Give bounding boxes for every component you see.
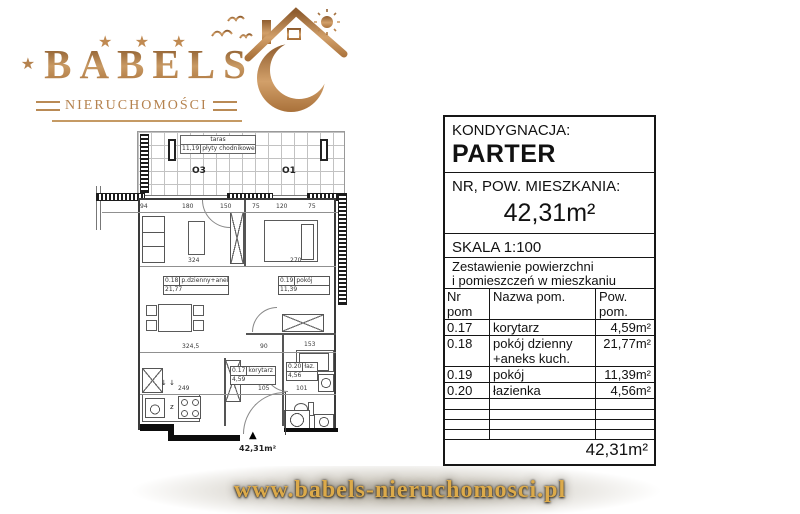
interior-wall <box>244 200 246 267</box>
room-name: p.dzienny+aneks <box>180 277 228 285</box>
house-crescent-icon <box>208 6 353 124</box>
dimension-line <box>140 352 336 353</box>
room-label-bathroom: 0.20 łaz. 4,56 <box>286 362 318 381</box>
room-name: pokój <box>295 277 313 285</box>
door-leaf <box>285 392 286 435</box>
dim-label: 249 <box>178 386 189 392</box>
dimension-line <box>140 266 336 267</box>
fridge <box>142 368 163 393</box>
terrace-area: 11,19 <box>181 145 201 153</box>
sofa <box>142 216 165 263</box>
cell-nr: 0.20 <box>445 383 490 398</box>
cell-area: 4,59m² <box>596 320 654 335</box>
wall-hatch-right <box>338 193 347 305</box>
birds-icon <box>212 17 252 38</box>
dimension-line <box>140 394 336 395</box>
floor-label: KONDYGNACJA: <box>452 122 647 139</box>
dim-label: 94 <box>140 204 148 210</box>
window-label-o3: O3 <box>192 168 206 175</box>
washing-machine <box>318 374 334 392</box>
floor-section: KONDYGNACJA: PARTER <box>445 117 654 173</box>
room-label-bedroom: 0.19 pokój 11,39 <box>278 276 330 295</box>
cell-name: korytarz <box>490 320 596 335</box>
room-nr: 0.19 <box>279 277 295 285</box>
table-row: 0.19 pokój 11,39m² <box>445 367 654 383</box>
apartment-area-value: 42,31m² <box>452 199 647 228</box>
cell-name: pokój dzienny +aneks kuch. <box>490 336 596 366</box>
scale-label: SKALA 1:100 <box>445 234 654 258</box>
terrace-side-wall <box>140 134 149 193</box>
table-row: 0.20 łazienka 4,56m² <box>445 383 654 399</box>
dim-label: 105 <box>258 386 269 392</box>
dim-label: 75 <box>308 204 316 210</box>
summary-title-line1: Zestawienie powierzchni <box>452 260 647 274</box>
room-nr: 0.18 <box>164 277 180 285</box>
cell-nr: 0.19 <box>445 367 490 382</box>
cell-name: łazienka <box>490 383 596 398</box>
cell-area: 21,77m² <box>596 336 654 366</box>
star-icon: ★ <box>21 54 35 74</box>
cell-nr: 0.18 <box>445 336 490 366</box>
kitchen-sink <box>145 398 165 418</box>
cell-area: 11,39m² <box>596 367 654 382</box>
room-area: 4,59 <box>231 376 275 384</box>
terrace-post <box>168 139 176 161</box>
room-area: 11,39 <box>279 286 329 294</box>
table-row: 0.17 korytarz 4,59m² <box>445 320 654 336</box>
coffee-table <box>188 221 205 255</box>
site-footer: www.babels-nieruchomosci.pl <box>0 466 800 514</box>
kitchen-mark: z <box>170 404 174 411</box>
entrance-wall <box>173 435 240 441</box>
dim-label: 75 <box>252 204 260 210</box>
room-nr: 0.17 <box>231 367 247 375</box>
dim-label: 270 <box>290 258 301 264</box>
room-name: łaz. <box>303 363 315 371</box>
bath-bottom-wall <box>282 428 338 432</box>
room-area: 4,56 <box>287 372 317 380</box>
room-area: 21,77 <box>164 286 228 294</box>
room-name: korytarz <box>247 367 274 375</box>
window-label-o1: O1 <box>282 168 296 175</box>
cell-name: pokój <box>490 367 596 382</box>
chair <box>146 305 157 316</box>
flyer-page: ★ ★ ★ ★ BABELS ★ NIERUCHOMOŚCI <box>0 0 800 514</box>
dim-label: 90 <box>260 344 268 350</box>
interior-wall <box>246 333 336 335</box>
brand-subtitle: NIERUCHOMOŚCI <box>65 98 208 114</box>
table-row: 0.18 pokój dzienny +aneks kuch. 21,77m² <box>445 336 654 367</box>
info-panel: KONDYGNACJA: PARTER NR, POW. MIESZKANIA:… <box>443 115 656 466</box>
chair <box>146 320 157 331</box>
dim-label: 150 <box>220 204 231 210</box>
dim-label: 324 <box>188 258 199 264</box>
cell-nr: 0.17 <box>445 320 490 335</box>
dim-label: 153 <box>304 342 315 348</box>
table-row-empty <box>445 410 654 420</box>
floor-plan: taras 11,19 płyty chodnikowe O3 O1 <box>96 128 354 464</box>
apartment-section: NR, POW. MIESZKANIA: 42,31m² <box>445 173 654 234</box>
apartment-area-label: 42,31m² <box>239 444 276 453</box>
entrance-wall <box>140 424 171 431</box>
bed <box>264 220 318 262</box>
summary-title-line2: i pomieszczeń w mieszkaniu <box>452 274 647 288</box>
roof-window <box>288 29 300 39</box>
col-name: Nazwa pom. <box>490 289 596 319</box>
chair <box>193 320 204 331</box>
col-area: Pow. pom. <box>596 289 654 319</box>
col-nr: Nr pom <box>445 289 490 319</box>
dim-label: 180 <box>182 204 193 210</box>
dim-label: 101 <box>296 386 307 392</box>
apartment-label: NR, POW. MIESZKANIA: <box>452 178 647 195</box>
total-area: 42,31m² <box>445 440 654 464</box>
room-label-corridor: 0.17 korytarz 4,59 <box>230 366 276 385</box>
vent-arrows: ↓ ↓ <box>161 380 175 387</box>
dining-table <box>158 304 192 332</box>
table-row-empty <box>445 420 654 430</box>
crescent-inner <box>270 41 328 99</box>
double-line-icon <box>36 101 60 111</box>
terrace-name: taras <box>181 136 255 144</box>
entrance-triangle-icon: ▲ <box>249 431 257 441</box>
table-row-empty <box>445 399 654 409</box>
terrace-surface: płyty chodnikowe <box>201 145 255 153</box>
summary-title: Zestawienie powierzchni i pomieszczeń w … <box>445 258 654 289</box>
room-label-living: 0.18 p.dzienny+aneks 21,77 <box>163 276 229 295</box>
dim-label: 120 <box>276 204 287 210</box>
wall-recess <box>173 426 239 432</box>
table-header: Nr pom Nazwa pom. Pow. pom. <box>445 289 654 320</box>
floor-value: PARTER <box>452 139 647 169</box>
terrace-post <box>320 139 328 161</box>
terrace-label: taras 11,19 płyty chodnikowe <box>180 135 256 154</box>
dim-label: 324,5 <box>182 344 199 350</box>
pillow <box>301 224 314 260</box>
cell-area: 4,56m² <box>596 383 654 398</box>
wardrobe <box>282 314 324 332</box>
table-row-empty <box>445 430 654 440</box>
wardrobe <box>230 212 244 264</box>
brand-logo: ★ ★ ★ ★ BABELS ★ NIERUCHOMOŚCI <box>10 6 355 124</box>
website-url: www.babels-nieruchomosci.pl <box>0 466 800 514</box>
chair <box>193 305 204 316</box>
room-nr: 0.20 <box>287 363 303 371</box>
stove <box>178 396 201 419</box>
dimension-line <box>102 212 338 213</box>
shower <box>284 410 310 430</box>
